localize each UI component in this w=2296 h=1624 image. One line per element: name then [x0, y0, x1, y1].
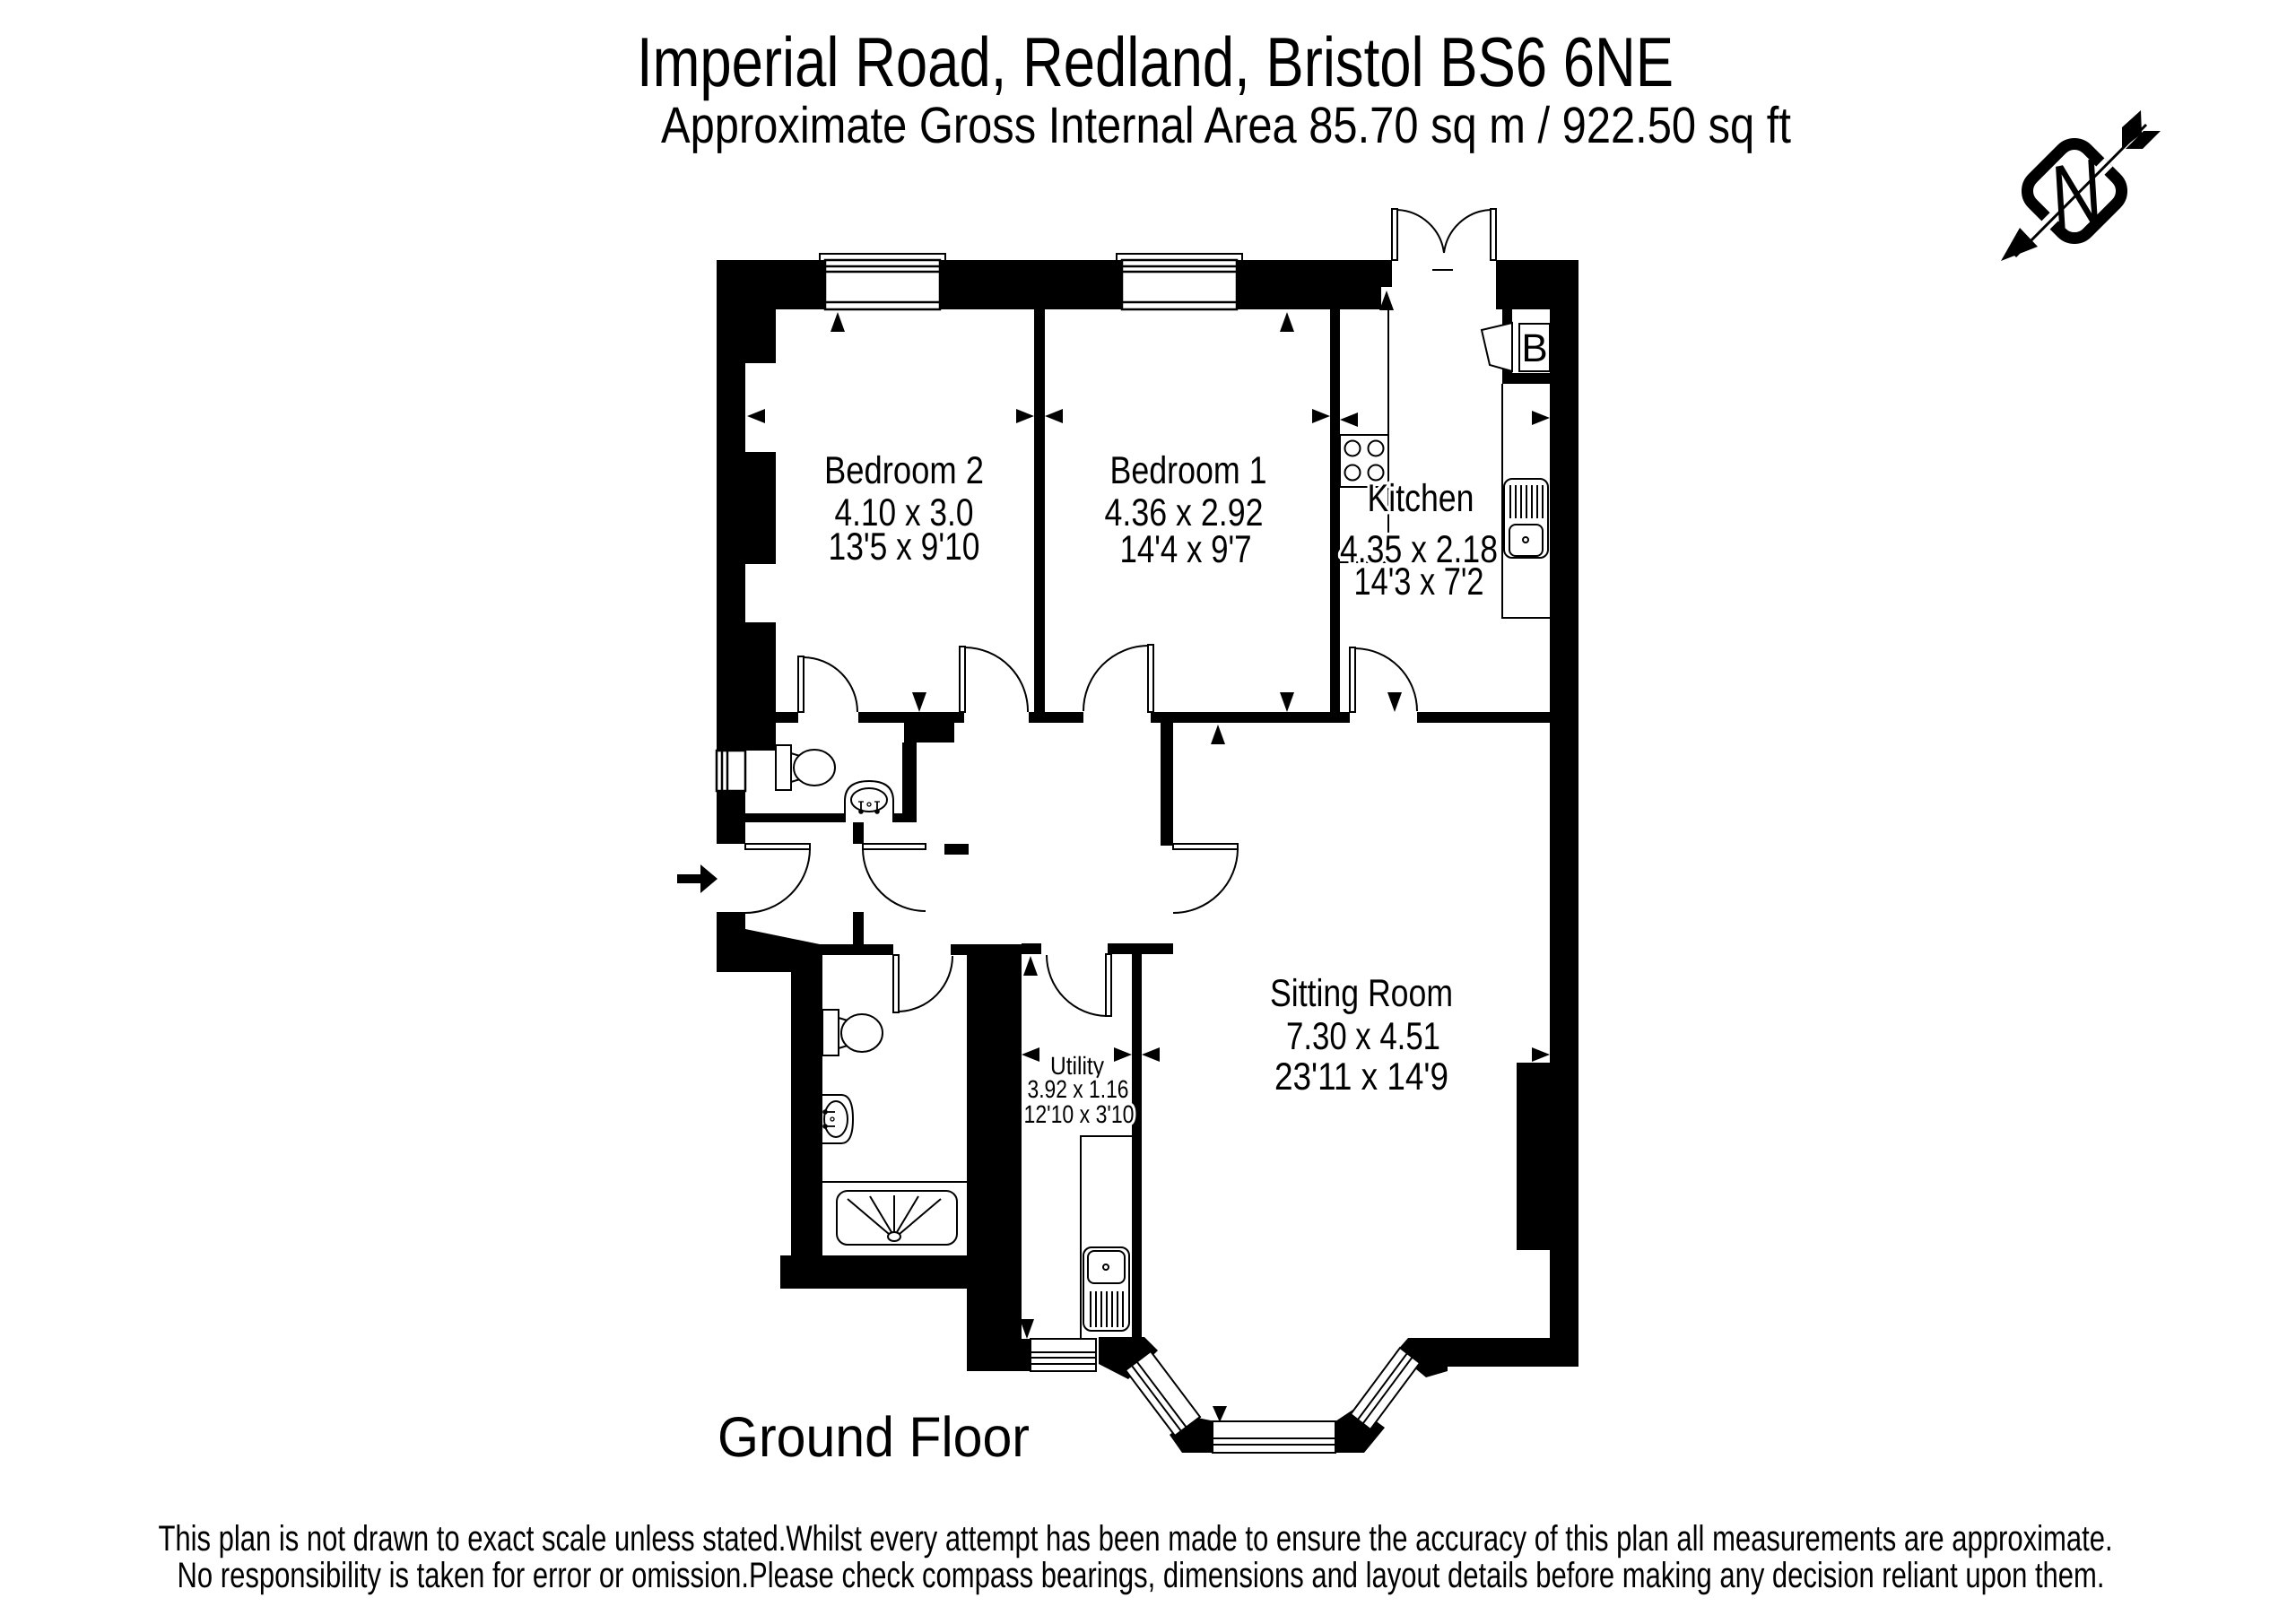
svg-text:Ground Floor: Ground Floor: [717, 1406, 1030, 1469]
svg-text:Bedroom 2: Bedroom 2: [824, 449, 984, 492]
svg-text:Imperial Road, Redland, Bristo: Imperial Road, Redland, Bristol BS6 6NE: [637, 22, 1674, 101]
svg-text:Bedroom 1: Bedroom 1: [1109, 449, 1266, 492]
svg-text:B: B: [1521, 326, 1547, 370]
svg-text:13'5 x 9'10: 13'5 x 9'10: [829, 525, 980, 569]
svg-text:Kitchen: Kitchen: [1368, 477, 1474, 520]
svg-text:No responsibility is taken for: No responsibility is taken for error or …: [178, 1556, 2105, 1595]
svg-text:23'11 x 14'9: 23'11 x 14'9: [1274, 1055, 1448, 1099]
svg-text:This plan is not drawn to exac: This plan is not drawn to exact scale un…: [158, 1519, 2112, 1559]
svg-text:12'10 x 3'10: 12'10 x 3'10: [1024, 1100, 1135, 1128]
svg-text:7.30 x 4.51: 7.30 x 4.51: [1286, 1015, 1440, 1058]
svg-text:14'4 x 9'7: 14'4 x 9'7: [1120, 528, 1252, 571]
svg-text:14'3 x 7'2: 14'3 x 7'2: [1353, 560, 1483, 604]
svg-text:Sitting Room: Sitting Room: [1270, 972, 1453, 1015]
svg-text:Approximate Gross Internal Are: Approximate Gross Internal Area 85.70 sq…: [661, 97, 1791, 154]
svg-text:3.92 x 1.16: 3.92 x 1.16: [1028, 1075, 1129, 1103]
